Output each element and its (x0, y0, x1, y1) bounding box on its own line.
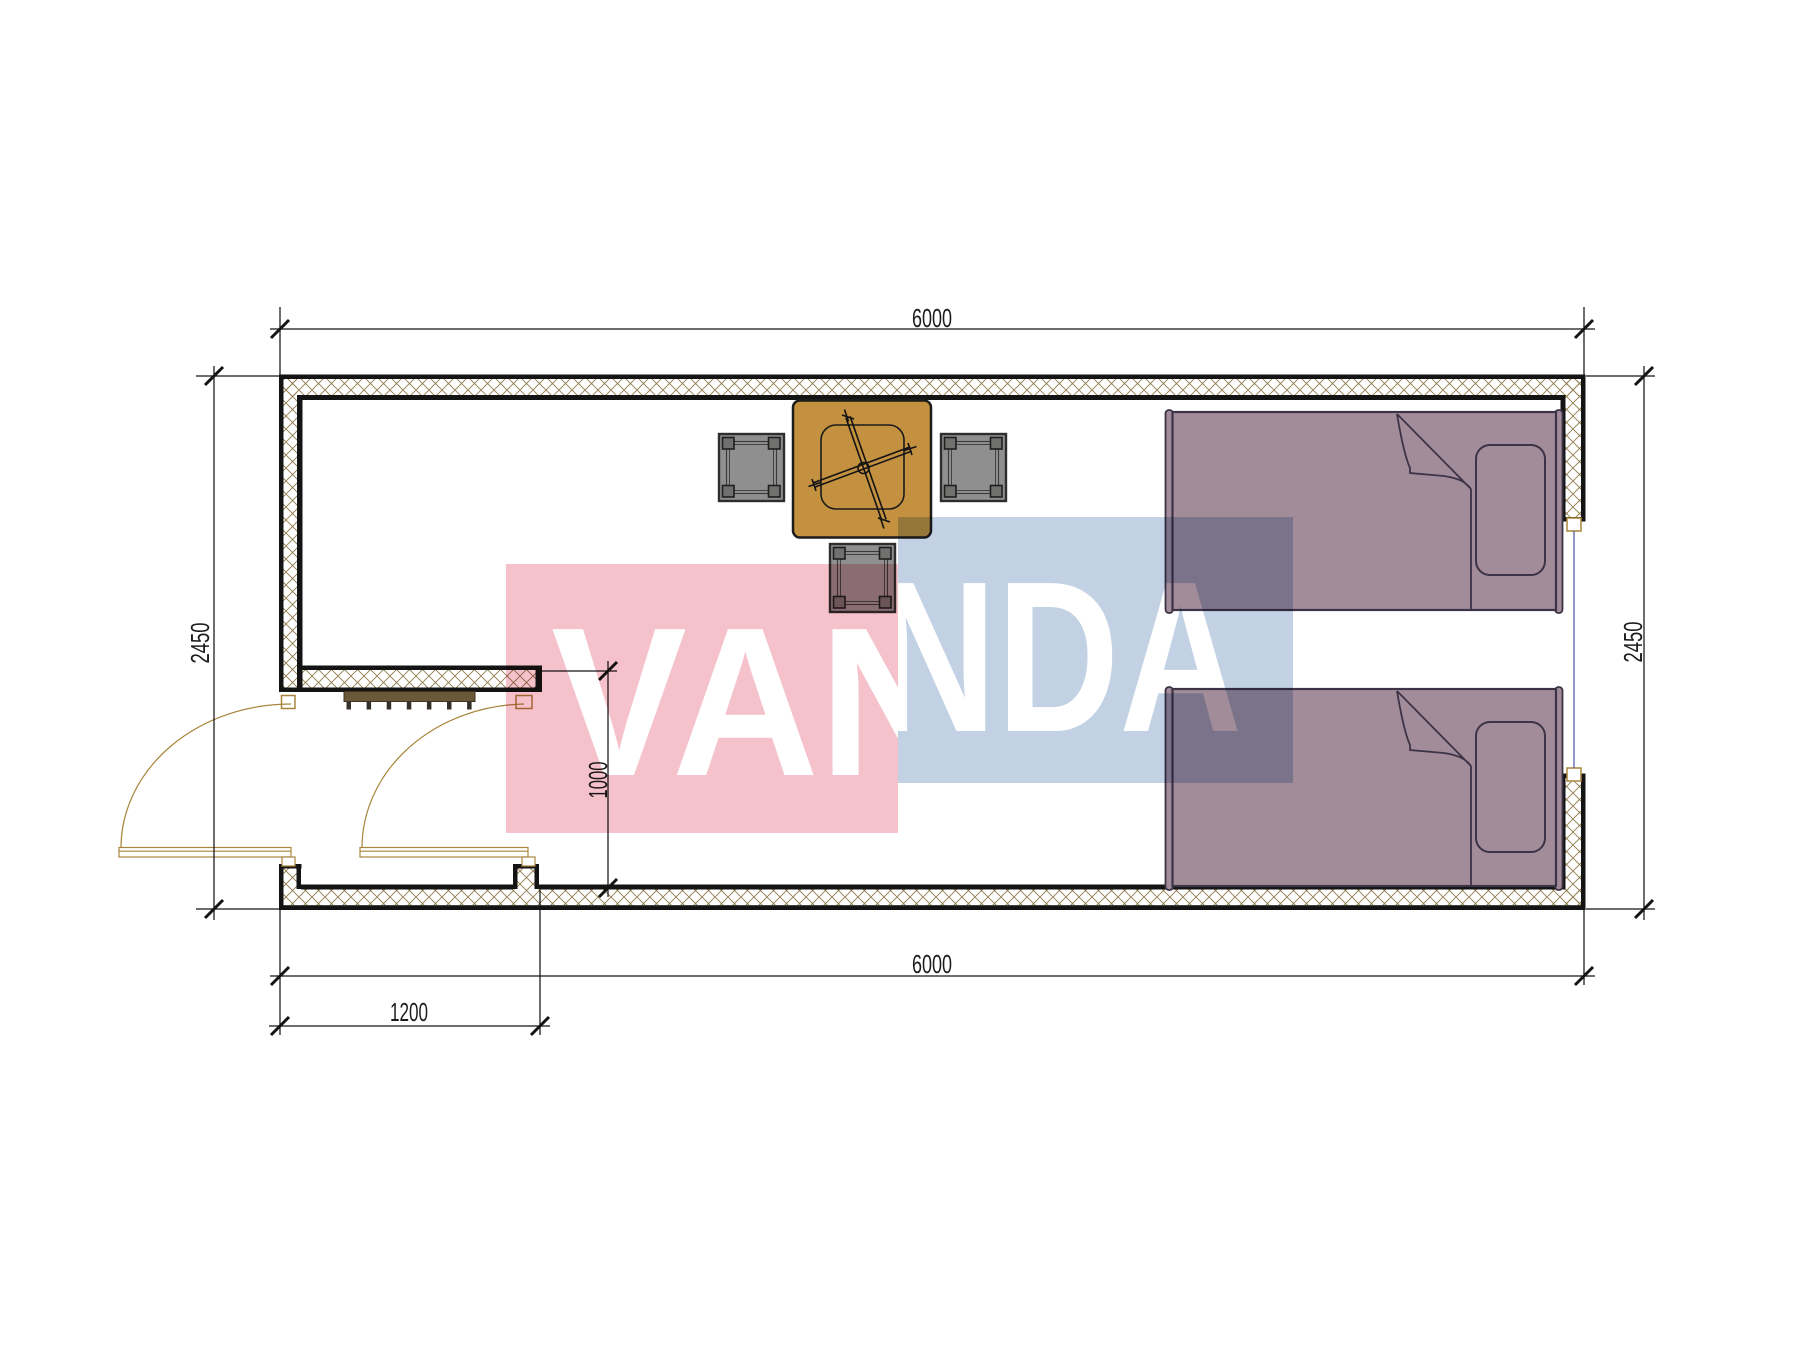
svg-text:2450: 2450 (1618, 622, 1648, 663)
svg-text:6000: 6000 (912, 949, 952, 979)
svg-text:1200: 1200 (390, 997, 428, 1027)
svg-text:6000: 6000 (912, 303, 952, 333)
svg-text:2450: 2450 (185, 623, 215, 664)
